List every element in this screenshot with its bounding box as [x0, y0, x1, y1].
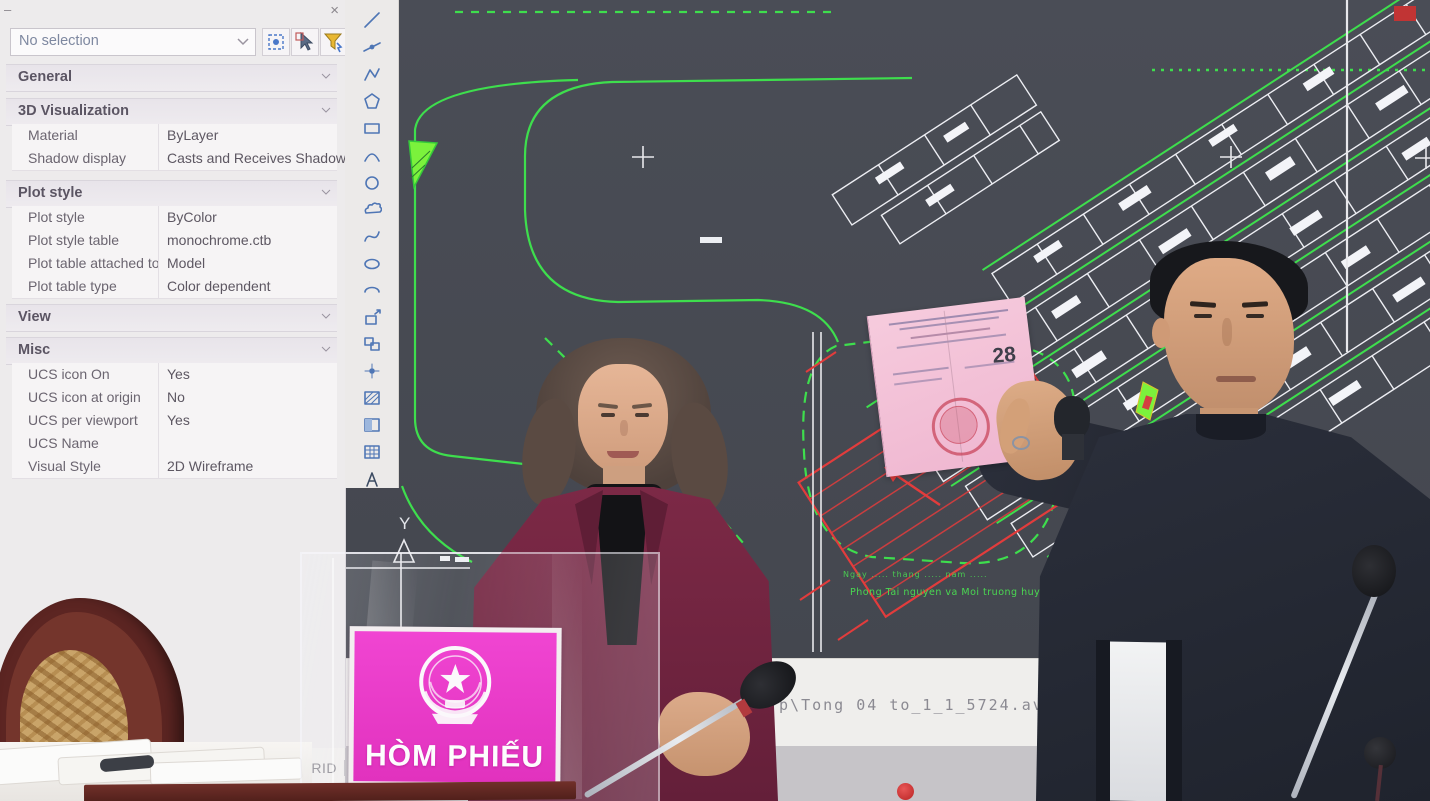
property-value[interactable]: No [158, 386, 337, 409]
arc-icon[interactable] [359, 142, 385, 168]
multiline-text-icon[interactable] [359, 466, 385, 492]
palette-minimize-button[interactable]: – [4, 2, 11, 17]
hatch-icon[interactable] [359, 385, 385, 411]
property-row: UCS icon at origin No [12, 386, 337, 410]
property-row: UCS per viewport Yes [12, 409, 337, 433]
filter-funnel-icon [321, 29, 345, 55]
selection-dropdown-value: No selection [19, 33, 99, 49]
chevron-down-icon [321, 189, 331, 196]
person-man [985, 238, 1430, 801]
property-row: UCS Name [12, 432, 337, 456]
property-value[interactable]: Model [158, 252, 337, 275]
property-value[interactable]: Color dependent [158, 275, 337, 298]
ring [1012, 436, 1030, 450]
property-value[interactable]: ByLayer [158, 124, 337, 147]
microphone-led [897, 783, 914, 800]
line-icon[interactable] [359, 7, 385, 33]
ballot-box-sign-text: HÒM PHIẾU [353, 739, 555, 775]
property-value[interactable]: Casts and Receives Shadows [158, 147, 337, 170]
chevron-down-icon [321, 73, 331, 80]
property-row: Shadow display Casts and Receives Shadow… [12, 147, 337, 171]
insert-block-icon[interactable] [359, 304, 385, 330]
cursor-arrow-icon [292, 29, 318, 55]
ucs-axis-label: Y [399, 514, 410, 534]
selection-dropdown[interactable]: No selection [10, 28, 256, 56]
ballot-box: HÒM PHIẾU [300, 552, 660, 801]
section-header-plot-style[interactable]: Plot style [6, 180, 337, 208]
make-block-icon[interactable] [359, 331, 385, 357]
property-value[interactable]: monochrome.ctb [158, 229, 337, 252]
revision-cloud-icon[interactable] [359, 196, 385, 222]
microphone-head-icon [1352, 545, 1396, 597]
polyline-icon[interactable] [359, 61, 385, 87]
quick-select-button[interactable] [320, 28, 346, 56]
ellipse-arc-icon[interactable] [359, 277, 385, 303]
chevron-down-icon [237, 38, 249, 46]
drawing-signature-line: Ngay ..... thang ..... nam ..... [843, 570, 988, 579]
property-value[interactable]: ByColor [158, 206, 337, 229]
property-row: Plot table type Color dependent [12, 275, 337, 299]
ballot-box-sign: HÒM PHIẾU [348, 626, 561, 788]
point-icon[interactable] [359, 358, 385, 384]
gradient-icon[interactable] [359, 412, 385, 438]
property-value[interactable]: 2D Wireframe [158, 455, 337, 478]
property-row: Plot style table monochrome.ctb [12, 229, 337, 253]
circle-icon[interactable] [359, 169, 385, 195]
vietnam-emblem-icon [412, 642, 499, 735]
table-icon[interactable] [359, 439, 385, 465]
section-header-view[interactable]: View [6, 304, 337, 332]
property-value[interactable] [158, 432, 337, 455]
property-value[interactable]: Yes [158, 363, 337, 386]
palette-close-button[interactable]: × [330, 2, 339, 19]
property-row: UCS icon On Yes [12, 363, 337, 387]
property-row: Material ByLayer [12, 124, 337, 148]
polygon-icon[interactable] [359, 88, 385, 114]
man-shirt [1107, 641, 1170, 801]
red-stamp-icon [929, 394, 994, 459]
table-wood-edge [84, 781, 576, 801]
property-row: Plot style ByColor [12, 206, 337, 230]
section-header-general[interactable]: General [6, 64, 337, 92]
section-header-3d-visualization[interactable]: 3D Visualization [6, 98, 337, 126]
ballot-number: 28 [991, 343, 1016, 369]
select-objects-button[interactable] [291, 28, 319, 56]
chevron-down-icon [321, 346, 331, 353]
construction-line-icon[interactable] [359, 34, 385, 60]
chevron-down-icon [321, 313, 331, 320]
pickadd-icon [263, 29, 289, 55]
spline-icon[interactable] [359, 223, 385, 249]
property-value[interactable]: Yes [158, 409, 337, 432]
property-row: Visual Style 2D Wireframe [12, 455, 337, 479]
chevron-down-icon [321, 107, 331, 114]
section-header-misc[interactable]: Misc [6, 337, 337, 365]
ellipse-icon[interactable] [359, 250, 385, 276]
photo-stage: Ngay ..... thang ..... nam ..... Phong T… [0, 0, 1430, 801]
toggle-pickadd-button[interactable] [262, 28, 290, 56]
rectangle-icon[interactable] [359, 115, 385, 141]
draw-toolbar [345, 0, 399, 488]
property-row: Plot table attached to Model [12, 252, 337, 276]
